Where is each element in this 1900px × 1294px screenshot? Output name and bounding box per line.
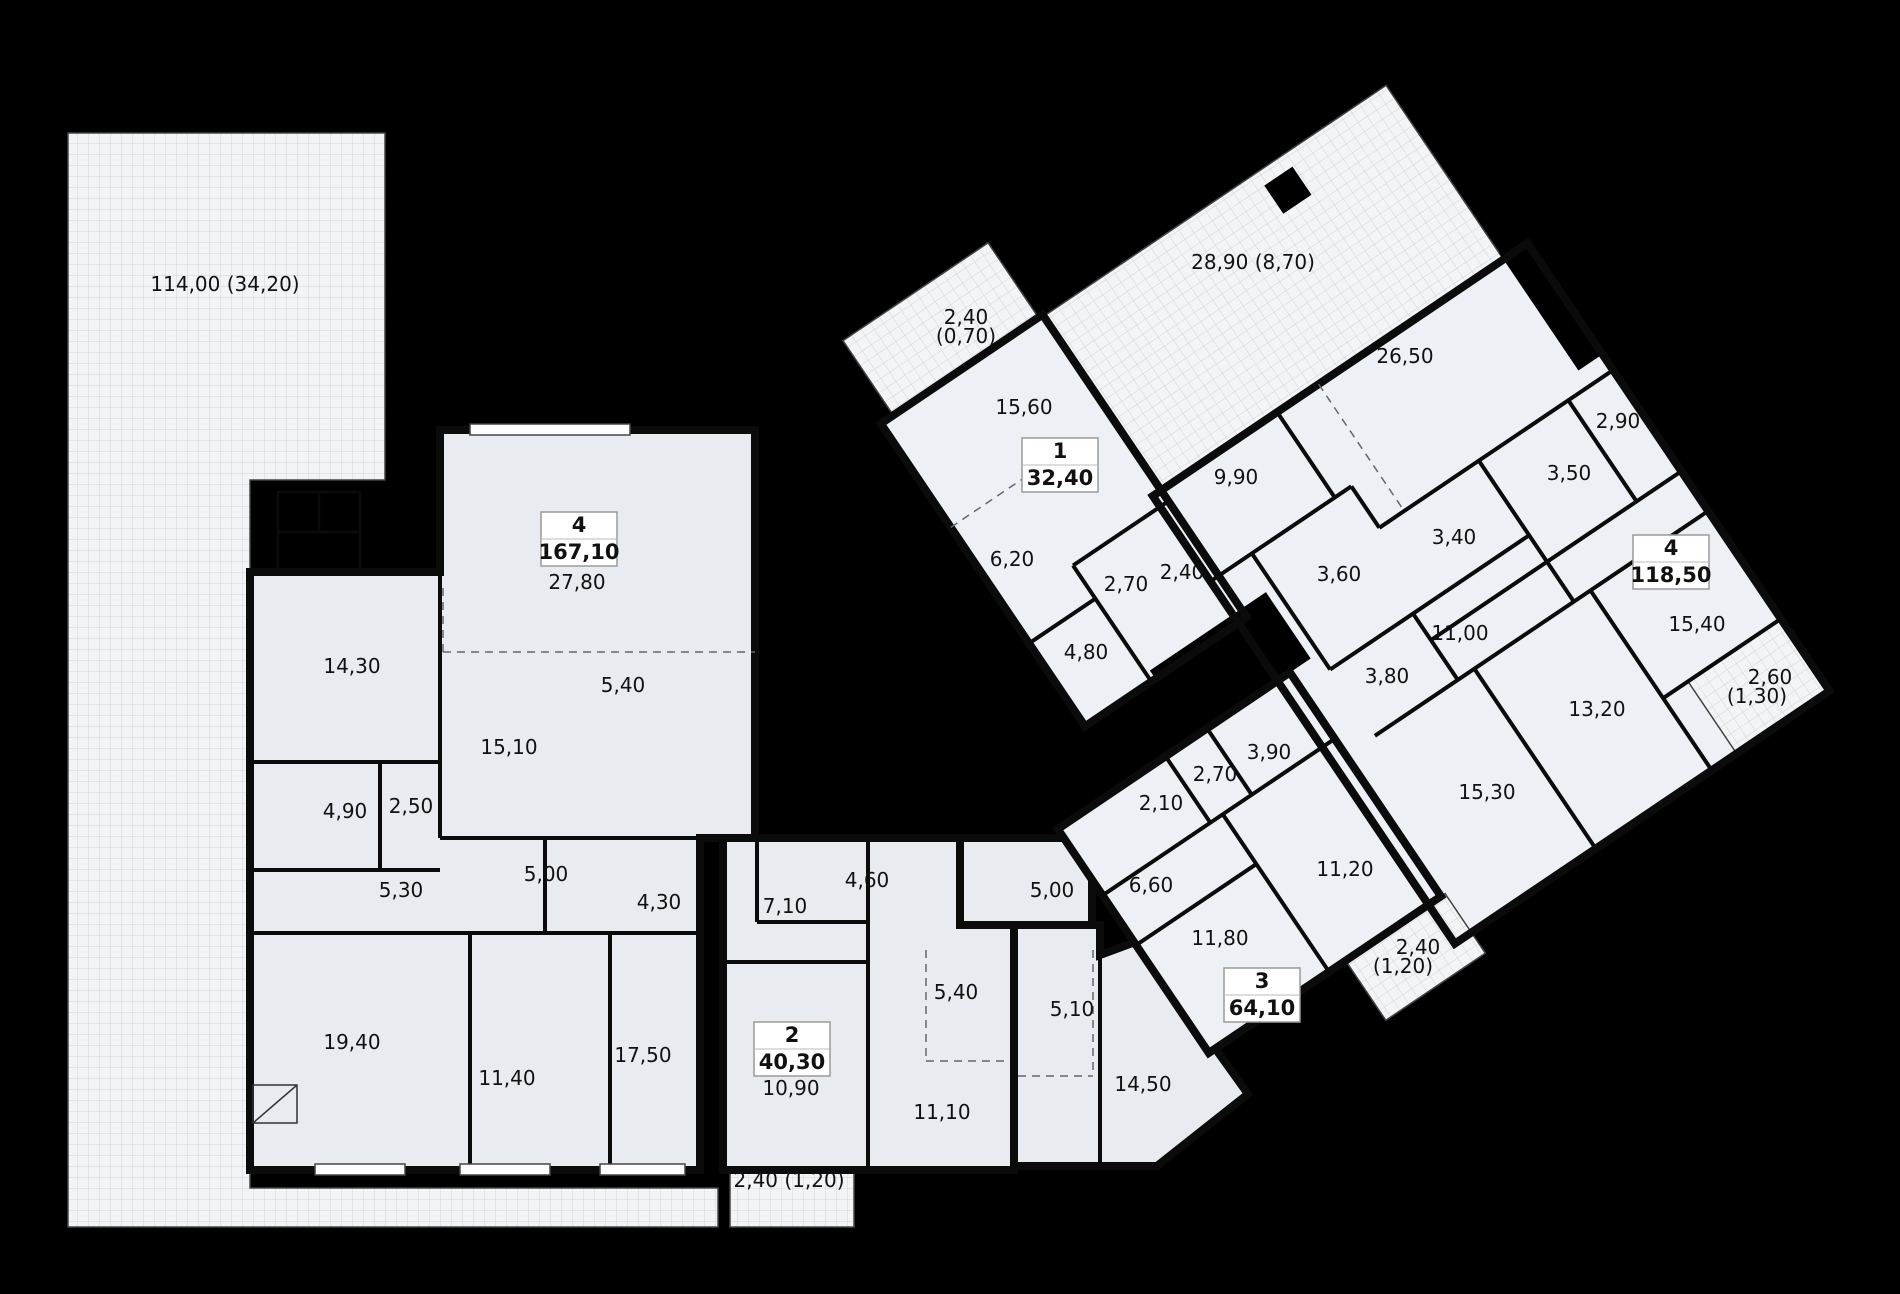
room-area-label: 5,40 bbox=[601, 673, 646, 697]
room-area-label: 6,20 bbox=[990, 547, 1035, 571]
room-area-label: 5,00 bbox=[524, 862, 569, 886]
room-area-label: 5,00 bbox=[1030, 878, 1075, 902]
room-area-label: 15,10 bbox=[480, 735, 537, 759]
room-area-label: 14,50 bbox=[1114, 1072, 1171, 1096]
room-area-label: 5,30 bbox=[379, 878, 424, 902]
apartment-number: 3 bbox=[1255, 969, 1270, 993]
room-area-label: 2,90 bbox=[1596, 409, 1641, 433]
room-area-label: 2,50 bbox=[389, 794, 434, 818]
room-area-label: 7,10 bbox=[763, 894, 808, 918]
apartment-badge-apt-2: 240,30 bbox=[754, 1022, 830, 1076]
apartment-number: 2 bbox=[785, 1023, 800, 1047]
floor-plan-page: 114,00 (34,20)27,805,4014,3015,104,902,5… bbox=[0, 0, 1900, 1294]
apartment-badge-apt-4-left: 4167,10 bbox=[538, 512, 619, 566]
room-area-label: 15,30 bbox=[1458, 780, 1515, 804]
room-area-label: 27,80 bbox=[548, 570, 605, 594]
room-area-label: 11,80 bbox=[1191, 926, 1248, 950]
room-area-label: 4,60 bbox=[845, 868, 890, 892]
room-area-label: 19,40 bbox=[323, 1030, 380, 1054]
room-area-label: 4,80 bbox=[1064, 640, 1109, 664]
apartment-total-area: 64,10 bbox=[1229, 996, 1295, 1020]
room-area-label: 14,30 bbox=[323, 654, 380, 678]
room-area-label: 2,10 bbox=[1139, 791, 1184, 815]
room-area-label: 3,80 bbox=[1365, 664, 1410, 688]
room-area-label: 5,40 bbox=[934, 980, 979, 1004]
apartment-badge-apt-4-right: 4118,50 bbox=[1630, 535, 1711, 589]
apartment-number: 1 bbox=[1053, 439, 1068, 463]
room-area-label: 11,00 bbox=[1431, 621, 1488, 645]
room-area-label: (1,20) bbox=[1373, 954, 1433, 978]
room-area-label: 2,40 (1,20) bbox=[733, 1168, 844, 1192]
room-area-label: 4,90 bbox=[323, 799, 368, 823]
apartment-total-area: 32,40 bbox=[1027, 466, 1093, 490]
room-area-label: 9,90 bbox=[1214, 465, 1259, 489]
room-area-label: 2,70 bbox=[1104, 572, 1149, 596]
room-area-label: 5,10 bbox=[1050, 997, 1095, 1021]
floor-plan-svg: 114,00 (34,20)27,805,4014,3015,104,902,5… bbox=[0, 0, 1900, 1294]
room-area-label: 15,40 bbox=[1668, 612, 1725, 636]
room-area-label: (0,70) bbox=[936, 324, 996, 348]
apartment-total-area: 40,30 bbox=[759, 1050, 825, 1074]
room-area-label: 10,90 bbox=[762, 1076, 819, 1100]
apartment-badge-apt-3: 364,10 bbox=[1224, 968, 1300, 1022]
room-area-label: 11,20 bbox=[1316, 857, 1373, 881]
room-area-label: 3,90 bbox=[1247, 740, 1292, 764]
room-area-label: 2,70 bbox=[1193, 762, 1238, 786]
room-area-label: 11,10 bbox=[913, 1100, 970, 1124]
room-area-label: 3,60 bbox=[1317, 562, 1362, 586]
apartment-total-area: 118,50 bbox=[1630, 563, 1711, 587]
room-area-label: 4,30 bbox=[637, 890, 682, 914]
room-area-label: (1,30) bbox=[1727, 684, 1787, 708]
apartment-badge-apt-1: 132,40 bbox=[1022, 438, 1098, 492]
room-area-label: 13,20 bbox=[1568, 697, 1625, 721]
apartment-number: 4 bbox=[1664, 536, 1679, 560]
room-area-label: 17,50 bbox=[614, 1043, 671, 1067]
room-area-label: 15,60 bbox=[995, 395, 1052, 419]
apartment-total-area: 167,10 bbox=[538, 540, 619, 564]
room-area-label: 3,40 bbox=[1432, 525, 1477, 549]
room-area-label: 26,50 bbox=[1376, 344, 1433, 368]
room-area-label: 28,90 (8,70) bbox=[1191, 250, 1315, 274]
room-area-label: 114,00 (34,20) bbox=[150, 272, 299, 296]
room-area-label: 2,40 bbox=[1160, 560, 1205, 584]
room-area-label: 6,60 bbox=[1129, 873, 1174, 897]
room-area-label: 11,40 bbox=[478, 1066, 535, 1090]
apartment-number: 4 bbox=[572, 513, 587, 537]
room-area-label: 3,50 bbox=[1547, 461, 1592, 485]
